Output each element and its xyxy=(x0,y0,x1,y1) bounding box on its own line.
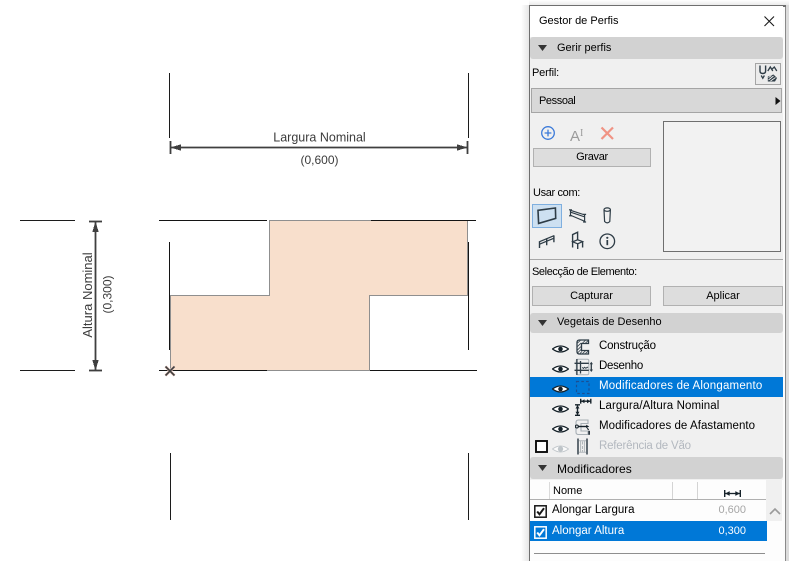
svg-text:Largura Nominal: Largura Nominal xyxy=(273,131,365,145)
svg-text:Altura Nominal: Altura Nominal xyxy=(80,252,95,337)
svg-text:(0,300): (0,300) xyxy=(101,275,115,313)
svg-text:(0,600): (0,600) xyxy=(300,153,338,167)
